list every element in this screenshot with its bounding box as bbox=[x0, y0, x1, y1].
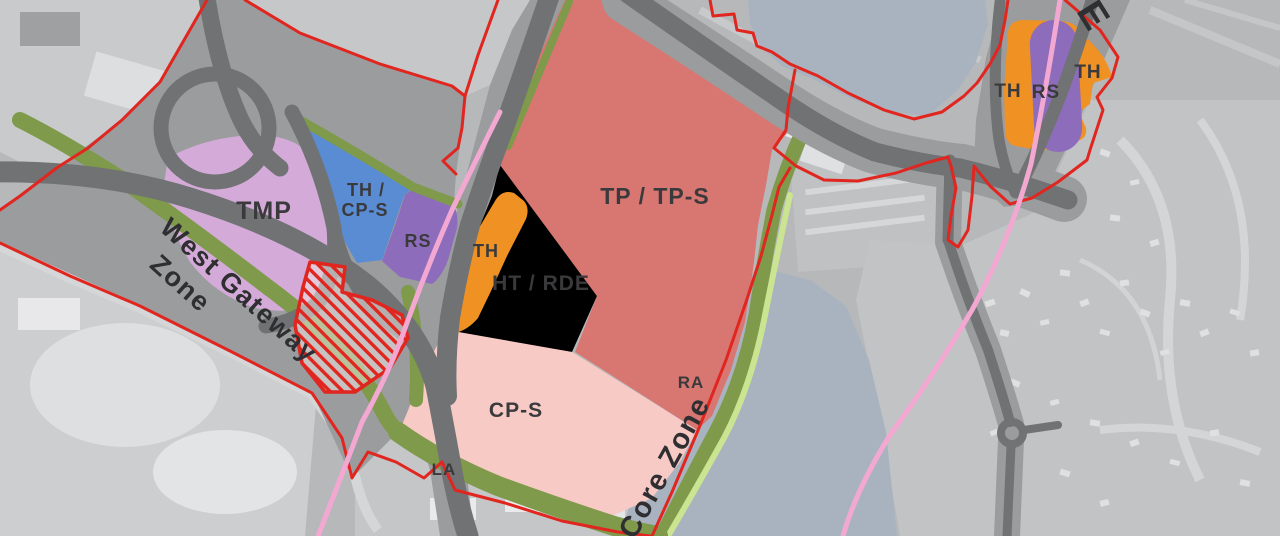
zoning-map: TMP TH / CP-S RS TH HT / RDE TP / TP-S C… bbox=[0, 0, 1280, 536]
aerial-building bbox=[18, 298, 80, 330]
aerial-trees bbox=[20, 12, 80, 46]
road-south-lower bbox=[1007, 446, 1011, 536]
label-rs-west: RS bbox=[404, 231, 431, 251]
label-th-east-right: TH bbox=[1074, 62, 1101, 83]
zoning-map-screenshot: TMP TH / CP-S RS TH HT / RDE TP / TP-S C… bbox=[0, 0, 1280, 536]
road-roundabout-spur bbox=[1024, 425, 1058, 430]
label-ra: RA bbox=[678, 373, 705, 392]
aerial-patch bbox=[30, 323, 220, 447]
label-rs-east: RS bbox=[1032, 82, 1060, 103]
label-cp-s: CP-S bbox=[489, 399, 543, 422]
label-th-west: TH bbox=[473, 241, 499, 261]
aerial-patch bbox=[153, 430, 297, 514]
label-ht-rde: HT / RDE bbox=[492, 272, 590, 295]
label-la: LA bbox=[432, 460, 457, 479]
label-tp-tps: TP / TP-S bbox=[600, 183, 710, 209]
label-th-cps-1: TH / bbox=[347, 180, 385, 200]
label-th-east-left: TH bbox=[994, 81, 1021, 102]
label-th-cps-2: CP-S bbox=[341, 200, 388, 220]
label-tmp: TMP bbox=[236, 197, 292, 225]
